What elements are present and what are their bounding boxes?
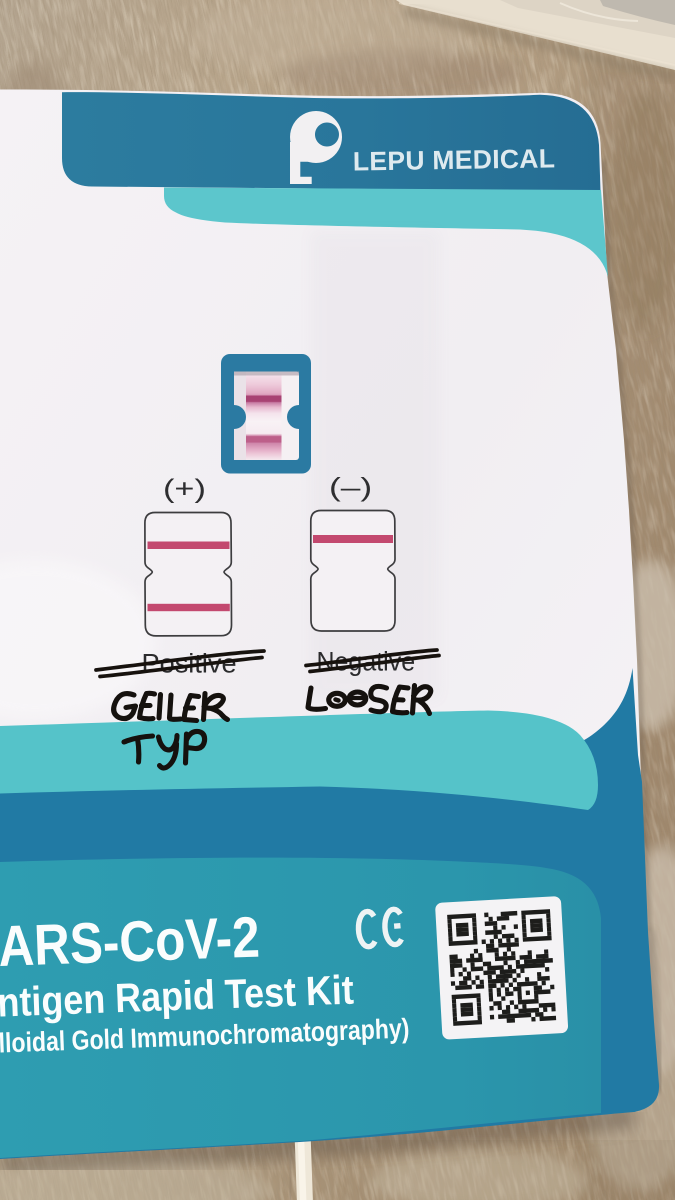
- svg-text:(–): (–): [329, 473, 372, 502]
- svg-text:LEPU MEDICAL: LEPU MEDICAL: [353, 143, 556, 176]
- svg-text:(+): (+): [163, 474, 206, 503]
- svg-text:SARS-CoV-2: SARS-CoV-2: [0, 905, 261, 980]
